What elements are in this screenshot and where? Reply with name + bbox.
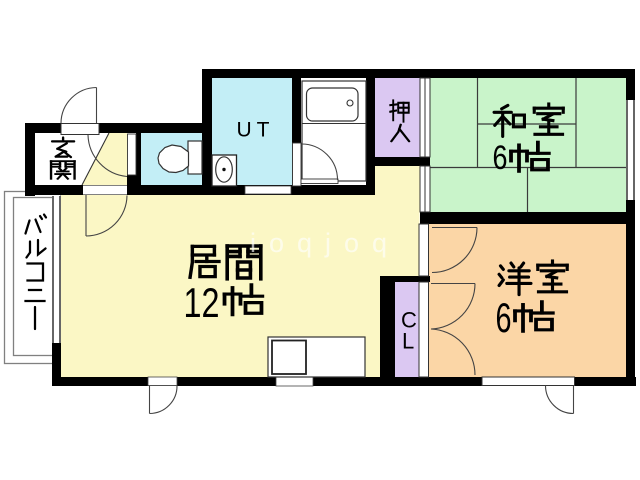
svg-text:6: 6 (493, 139, 508, 177)
svg-text:12: 12 (184, 279, 220, 326)
svg-text:6: 6 (496, 294, 512, 341)
svg-text:ioqjoq: ioqjoq (250, 228, 400, 258)
svg-text:UT: UT (237, 119, 275, 142)
svg-text:L: L (402, 329, 414, 354)
